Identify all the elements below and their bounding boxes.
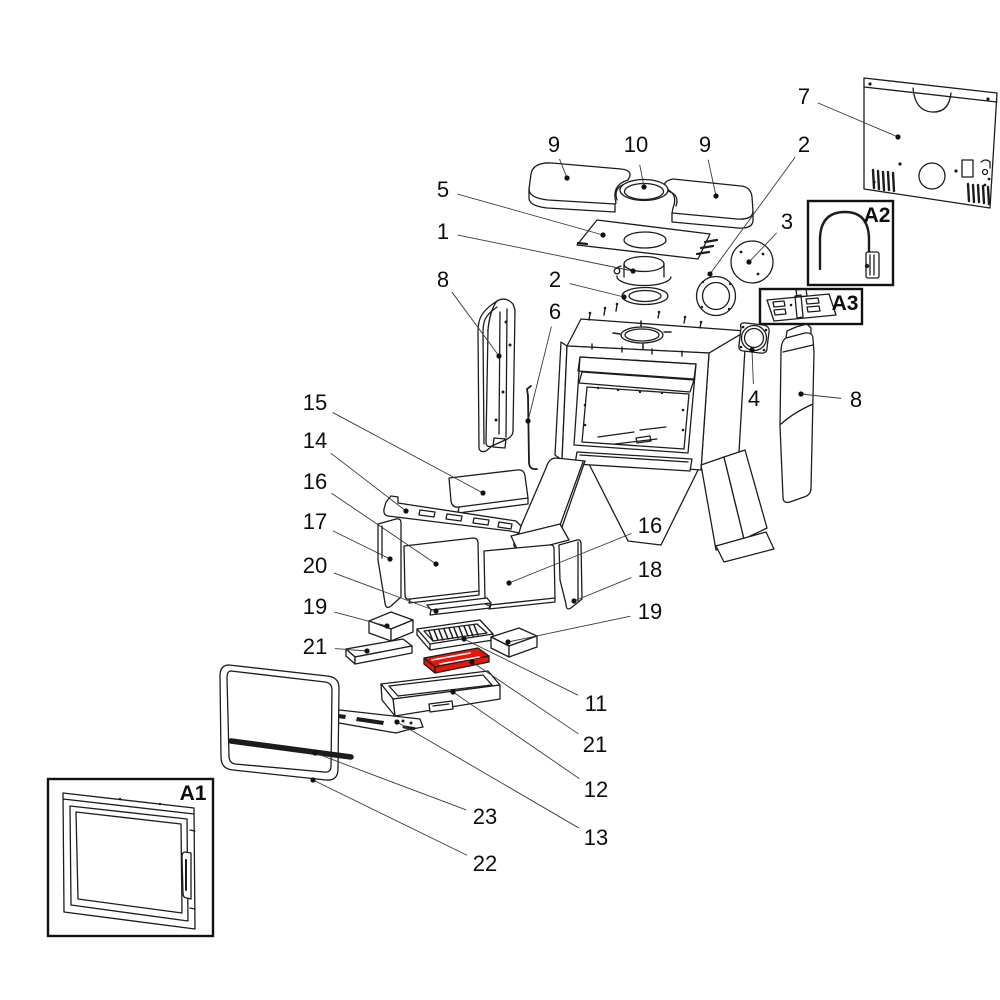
leader-dot-6-10 [525, 418, 530, 423]
part-9-top-plate-left [529, 163, 630, 212]
callout-label-16-20: 16 [638, 513, 662, 538]
part-19-block-left [369, 612, 413, 641]
leader-dot-2-9 [621, 294, 626, 299]
callout-label-18-21: 18 [638, 557, 662, 582]
part-10-lid [620, 180, 668, 201]
leader-dot-20-17 [433, 608, 438, 613]
leader-line-2-9 [570, 284, 624, 297]
leader-dot-4-11 [749, 347, 754, 352]
leader-dot-16-15 [433, 561, 438, 566]
callout-label-8-12: 8 [850, 387, 862, 412]
callout-label-9-5: 9 [699, 132, 711, 157]
callout-label-22-28: 22 [473, 851, 497, 876]
callout-label-15-13: 15 [303, 390, 327, 415]
callout-label-21-19: 21 [303, 634, 327, 659]
callout-label-11-23: 11 [585, 691, 608, 716]
callout-label-7-0: 7 [798, 84, 810, 109]
callout-label-8-8: 8 [437, 267, 449, 292]
part-8-side-panel-right [780, 324, 814, 502]
leader-line-18-21 [574, 578, 631, 601]
part-1-flue-collar [614, 257, 671, 286]
callout-label-21-24: 21 [583, 732, 607, 757]
part-11-grate [417, 620, 493, 650]
callout-label-2-1: 2 [798, 132, 810, 157]
callout-label-1-7: 1 [437, 219, 449, 244]
callout-label-12-25: 12 [584, 777, 608, 802]
bracket-plate [767, 289, 836, 321]
leader-dot-2-1 [707, 271, 712, 276]
part-5-top-plate [577, 220, 717, 259]
leader-line-4-11 [752, 350, 753, 384]
leader-dot-21-24 [469, 659, 474, 664]
part-9-top-plate-right [664, 179, 753, 228]
leader-line-14-14 [331, 453, 406, 511]
diagram-canvas: 7239109518264815141617201921161819112112… [0, 0, 1000, 1000]
part-21-bar-highlighted [424, 648, 489, 673]
leader-line-22-28 [313, 780, 467, 855]
leader-dot-18-21 [571, 598, 576, 603]
part-8-side-panel-left [478, 299, 515, 451]
leader-dot-15-13 [480, 490, 485, 495]
part-16-brick-left [404, 538, 479, 603]
callout-label-23-27: 23 [473, 804, 497, 829]
leader-line-23-27 [315, 753, 466, 810]
leader-dot-21-19 [364, 648, 369, 653]
part-22-door-glass [220, 665, 351, 780]
leader-dot-16-20 [506, 580, 511, 585]
leader-dot-17-16 [387, 556, 392, 561]
part-7-rear-panel [864, 78, 997, 208]
callout-label-4-11: 4 [748, 386, 760, 411]
callout-label-6-10: 6 [549, 299, 561, 324]
parts-diagram: 7239109518264815141617201921161819112112… [0, 0, 1000, 1000]
callout-label-19-22: 19 [638, 599, 662, 624]
leader-dot-7-0 [895, 134, 900, 139]
callout-label-13-26: 13 [584, 825, 608, 850]
part-19-block-right [491, 628, 537, 657]
part-21-bar [346, 639, 412, 664]
callout-label-19-18: 19 [303, 594, 327, 619]
leader-dot-8-12 [798, 391, 803, 396]
leader-dot-12-25 [450, 689, 455, 694]
part-15-baffle [449, 470, 528, 513]
callout-label-20-17: 20 [303, 553, 327, 578]
callout-label-17-16: 17 [303, 509, 327, 534]
leader-dot-19-22 [505, 639, 510, 644]
part-6-rod [527, 386, 537, 469]
callout-label-9-3: 9 [548, 132, 560, 157]
part-2-flue-ring-rear [697, 277, 736, 316]
leader-dot-5-6 [600, 232, 605, 237]
callout-label-14-14: 14 [303, 428, 327, 453]
leader-dot-3-2 [746, 259, 751, 264]
callout-label-10-4: 10 [624, 132, 648, 157]
leader-dot-23-27 [312, 750, 317, 755]
assembly-label-A1: A1 [180, 782, 207, 805]
callout-label-3-2: 3 [781, 209, 793, 234]
leader-dot-8-8 [496, 353, 501, 358]
leader-line-6-10 [528, 327, 551, 421]
callout-label-5-6: 5 [437, 177, 449, 202]
leader-line-15-13 [333, 412, 483, 493]
leader-dot-11-23 [461, 636, 466, 641]
part-3-blanking-plate [731, 241, 773, 283]
part-12-ash-pan [381, 671, 500, 716]
callout-label-2-9: 2 [549, 267, 561, 292]
door-assembly [63, 793, 195, 929]
leader-dot-9-5 [713, 193, 718, 198]
callout-label-16-15: 16 [303, 469, 327, 494]
assembly-label-A3: A3 [832, 292, 859, 315]
leader-dot-14-14 [403, 508, 408, 513]
part-16-brick-right [484, 545, 555, 609]
leader-dot-1-7 [630, 268, 635, 273]
leader-dot-22-28 [310, 777, 315, 782]
leader-dot-9-3 [564, 175, 569, 180]
part-18-side-brick-right [559, 540, 582, 609]
leader-dot-10-4 [641, 184, 646, 189]
leader-dot-19-18 [384, 623, 389, 628]
leader-line-19-22 [508, 616, 630, 642]
leader-dot-13-26 [394, 719, 399, 724]
part-2-flue-ring [622, 288, 668, 305]
assembly-label-A2: A2 [864, 204, 891, 227]
